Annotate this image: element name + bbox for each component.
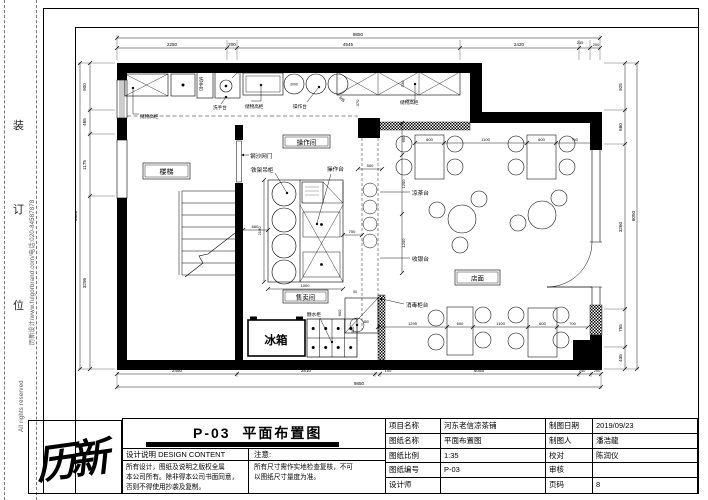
extension-lines	[78, 35, 639, 389]
section-bodies: 所有设计，图纸及说明之版权全属 本公司所有。除非得本公司书面同意， 否则不得使用…	[123, 461, 385, 493]
dim-label: 1295	[408, 321, 418, 326]
dim-label: 330	[400, 80, 405, 87]
section-headers: 设计说明 DESIGN CONTENT 注意:	[123, 448, 385, 461]
dim-label: 925	[618, 83, 623, 91]
stairs	[179, 191, 235, 277]
label-burner-size: 2000	[290, 83, 298, 87]
dim-label: 900	[82, 83, 87, 91]
drawing-title-row: P-03 平面布置图	[123, 419, 385, 448]
floor-plan-drawing: 楼梯 操作间 售卖间 店面 冰箱 储物高柜 洗手台 洗手台 储物高柜 操作台 储…	[75, 27, 700, 417]
dim-label: 365	[338, 95, 347, 104]
room-label-sales: 售卖间	[296, 293, 316, 302]
info-value: 陈润仪	[593, 449, 699, 464]
info-value: 1:35	[441, 449, 546, 464]
entry-door	[547, 242, 592, 287]
dim-label: 3295	[82, 277, 87, 288]
title-block-main: P-03 平面布置图 设计说明 DESIGN CONTENT 注意: 所有设计，…	[122, 418, 698, 494]
notice-text: 所有尺寸需作实地检查复核，不可 以图纸尺寸量度为准。	[249, 461, 385, 493]
info-label: 制图日期	[546, 419, 593, 434]
room-label-stairs: 楼梯	[160, 167, 174, 176]
tea-counter-jars	[350, 183, 377, 332]
binding-char: 装	[13, 117, 27, 133]
dim-label: 410	[350, 326, 355, 333]
info-label: 校对	[546, 449, 593, 464]
label-disinfect-counter: 消毒柜台	[406, 301, 429, 309]
dimension-ticks	[78, 36, 639, 389]
watermark-text: 历新设计/www.fulgorbrand.com/电话:020-84587878	[27, 200, 36, 345]
label-herbal-tea-counter: 凉茶台	[412, 189, 429, 197]
label-mesh-door: 钢沙网门	[250, 152, 273, 160]
company-logo: 历新	[28, 420, 122, 494]
dim-label: 50	[353, 290, 357, 294]
label-worktop-range: 操作台	[293, 103, 307, 110]
dim-label: 1175	[82, 160, 87, 170]
info-value: 潘浩龍	[593, 434, 699, 449]
dim-label: 240	[579, 368, 586, 373]
dim-label: 6050	[631, 210, 636, 221]
dim-label: 2250	[167, 42, 178, 47]
info-value	[593, 463, 699, 478]
dim-label: 2810	[301, 368, 312, 373]
room-label-shopfront: 店面	[471, 274, 485, 283]
binding-dash-line	[4, 0, 5, 500]
design-content-line: 否则不得使用抄袭及复制。	[126, 483, 248, 493]
dim-label: 5850	[75, 210, 78, 221]
info-value: 2019/09/23	[593, 419, 699, 434]
watermark-rights-text: All rights reserved	[19, 380, 25, 432]
walls	[117, 63, 602, 370]
dim-label: 750	[349, 229, 356, 234]
label-cashier-counter: 收银台	[412, 255, 429, 263]
dim-label: 480	[363, 320, 369, 324]
design-content-header: 设计说明 DESIGN CONTENT	[123, 449, 249, 460]
info-value	[441, 478, 546, 493]
dim-label: 1100	[496, 321, 505, 326]
dashed-lines	[127, 116, 378, 330]
drawing-name: 平面布置图	[242, 425, 322, 441]
dim-label: 200	[228, 42, 236, 47]
dim-label: 1000	[301, 283, 311, 288]
label-wash-basin-cell: 洗手台	[198, 76, 204, 92]
dim-label: 465	[82, 118, 87, 126]
dim-label: 9850	[353, 32, 364, 37]
dim-label: 370	[355, 99, 360, 106]
notice-header: 注意:	[249, 449, 385, 460]
dim-label: 435	[618, 354, 623, 362]
binding-char: 订	[13, 201, 27, 217]
info-label: 图纸编号	[386, 463, 441, 478]
dim-label: 4055	[474, 368, 485, 373]
dim-label: 200	[594, 368, 601, 373]
dim-label: 2450	[172, 368, 183, 373]
info-value: 河东老信凉茶铺	[441, 419, 546, 434]
design-content-text: 所有设计，图纸及说明之版权全属 本公司所有。除非得本公司书面同意， 否则不得使用…	[123, 461, 249, 493]
dim-label: 600	[538, 137, 545, 142]
dim-label: 600	[457, 321, 464, 326]
island-worktop	[268, 180, 343, 284]
title-underline-bar	[146, 442, 339, 447]
room-label-operation: 操作间	[297, 138, 317, 147]
dim-label: 1200	[401, 179, 406, 189]
dim-label: 4545	[343, 42, 354, 47]
info-table: 项目名称 河东老信凉茶铺 制图日期 2019/09/23 图纸名称 平面布置图 …	[386, 419, 699, 493]
dimension-lines	[80, 38, 637, 387]
dim-label: 9850	[354, 381, 365, 386]
notice-line: 所有尺寸需作实地检查复核，不可	[254, 463, 385, 473]
dim-label: 700	[569, 321, 576, 326]
title-block-left: P-03 平面布置图 设计说明 DESIGN CONTENT 注意: 所有设计，…	[123, 419, 386, 493]
info-label: 图纸名称	[386, 434, 441, 449]
binding-char: 位	[13, 297, 27, 313]
room-label-fridge: 冰箱	[265, 333, 288, 347]
dim-label: 755	[618, 324, 623, 332]
info-label: 图纸比例	[386, 449, 441, 464]
drawing-number: P-03	[193, 425, 231, 441]
info-label: 审核	[546, 463, 593, 478]
dim-label: 600	[426, 137, 433, 142]
dim-label: 650	[401, 135, 406, 142]
dim-label: 3260	[618, 221, 623, 232]
dim-label: 600	[337, 309, 342, 316]
dim-label: 600	[539, 321, 546, 326]
info-label: 设计师	[386, 478, 441, 493]
dim-label: 1200	[401, 238, 406, 248]
dim-label: 200	[593, 42, 600, 47]
dim-label: 500	[367, 163, 374, 168]
dining-tables	[396, 135, 575, 357]
label-sugar-water-cabinet: 糖水柜	[307, 311, 321, 318]
dim-label: 1100	[481, 137, 490, 142]
design-content-line: 所有设计，图纸及说明之版权全属	[126, 463, 248, 473]
dim-label: 235	[577, 40, 584, 45]
label-storage-cabinet-2: 储物高柜	[245, 103, 264, 110]
notice-line: 以图纸尺寸量度为准。	[254, 473, 385, 483]
info-value: 8	[593, 478, 699, 493]
fridge-and-cabinets	[248, 298, 378, 357]
label-iron-hanging-cabinet: 铁架吊柜	[251, 166, 274, 174]
dim-label: 680	[618, 123, 623, 131]
info-value: P-03	[441, 463, 546, 478]
label-storage-cabinet-1: 储物高柜	[140, 113, 159, 120]
dim-label: 660	[252, 224, 259, 229]
dim-label: 2420	[514, 42, 525, 47]
info-label: 页码	[546, 478, 593, 493]
room-label-boxes	[143, 135, 500, 303]
info-value: 平面布置图	[441, 434, 546, 449]
label-storage-cabinet-3: 储物高柜	[400, 99, 419, 106]
design-content-line: 本公司所有。除非得本公司书面同意，	[126, 473, 248, 483]
drawing-sheet: 装 订 位 历新设计/www.fulgorbrand.com/电话:020-84…	[0, 0, 708, 500]
dim-label: 750	[571, 137, 578, 142]
info-label: 项目名称	[386, 419, 441, 434]
dim-label: 100	[385, 368, 392, 373]
info-label: 制图人	[546, 434, 593, 449]
drawing-title: P-03 平面布置图	[193, 423, 322, 443]
company-logo-glyph: 历新	[31, 425, 106, 492]
label-wash-basin: 洗手台	[213, 104, 227, 111]
label-worktop-island: 操作台	[327, 165, 344, 173]
